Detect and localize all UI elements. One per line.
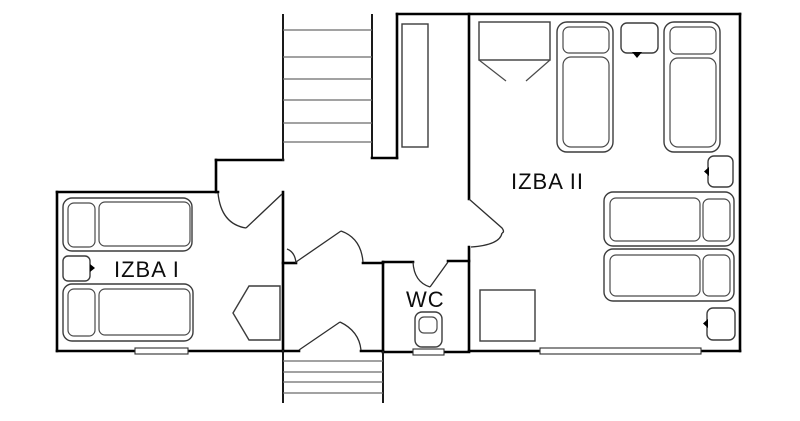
izba1-door-leaf — [246, 194, 282, 228]
bed-pillow — [68, 203, 95, 247]
toilet-seat — [419, 317, 437, 333]
wardrobe-door-line — [526, 60, 550, 81]
izba2-label: IZBA II — [511, 169, 584, 194]
izba1-door-arc — [218, 193, 246, 228]
stairs-door-arc — [340, 322, 361, 350]
wardrobe-door-line — [479, 60, 506, 81]
izba2-door-arc — [471, 233, 502, 247]
wc-fixtures — [415, 312, 442, 347]
nightstand — [621, 23, 658, 53]
nightstand — [63, 256, 90, 281]
bed-pillow — [670, 27, 716, 54]
izba2-door-leaf — [469, 199, 504, 233]
nightstand-handle-mark — [704, 167, 709, 176]
doors — [218, 193, 504, 350]
bed-pillow — [703, 199, 730, 241]
wc-door-arc — [413, 262, 430, 287]
walls — [57, 14, 740, 402]
izba2-window — [540, 348, 701, 354]
izba1-window — [135, 348, 188, 354]
wardrobe-open — [233, 286, 280, 340]
bed-pillow — [68, 289, 95, 336]
wc-door-leaf — [430, 262, 448, 287]
corridor-door-hinge-arc — [287, 249, 296, 263]
bed-frame — [604, 192, 734, 246]
stairs-door-leaf — [299, 322, 340, 350]
bed-frame — [557, 22, 613, 152]
bed-frame — [664, 22, 720, 152]
wc-label: WC — [406, 287, 445, 312]
nightstand-handle-mark — [632, 52, 642, 58]
bed-pillow — [563, 27, 609, 53]
bed-frame — [63, 198, 192, 251]
bed-mattress — [99, 289, 190, 335]
nightstand — [707, 308, 735, 340]
nightstand — [708, 156, 733, 187]
bed-frame — [63, 284, 193, 341]
stairs-lower-steps — [283, 361, 383, 393]
izba1-label: IZBA I — [114, 257, 180, 282]
square-table — [480, 290, 535, 341]
bed-mattress — [610, 255, 700, 296]
stairs-upper-steps — [283, 30, 372, 142]
bed-mattress — [99, 202, 190, 246]
corridor-door-arc — [341, 231, 363, 262]
wc-window — [413, 349, 444, 355]
floor-plan: IZBA I IZBA II WC — [0, 0, 800, 421]
bed-pillow — [703, 255, 730, 296]
wardrobe-open — [479, 22, 550, 60]
bed-frame — [604, 249, 734, 301]
bed-mattress — [563, 57, 609, 147]
bed-mattress — [670, 58, 716, 147]
bed-mattress — [610, 198, 700, 241]
floor-plan-svg: IZBA I IZBA II WC — [0, 0, 800, 421]
nightstand-handle-mark — [90, 264, 95, 272]
corridor-door-leaf — [296, 231, 341, 262]
nightstand-handle-mark — [703, 319, 708, 328]
tall-wardrobe — [402, 24, 428, 147]
